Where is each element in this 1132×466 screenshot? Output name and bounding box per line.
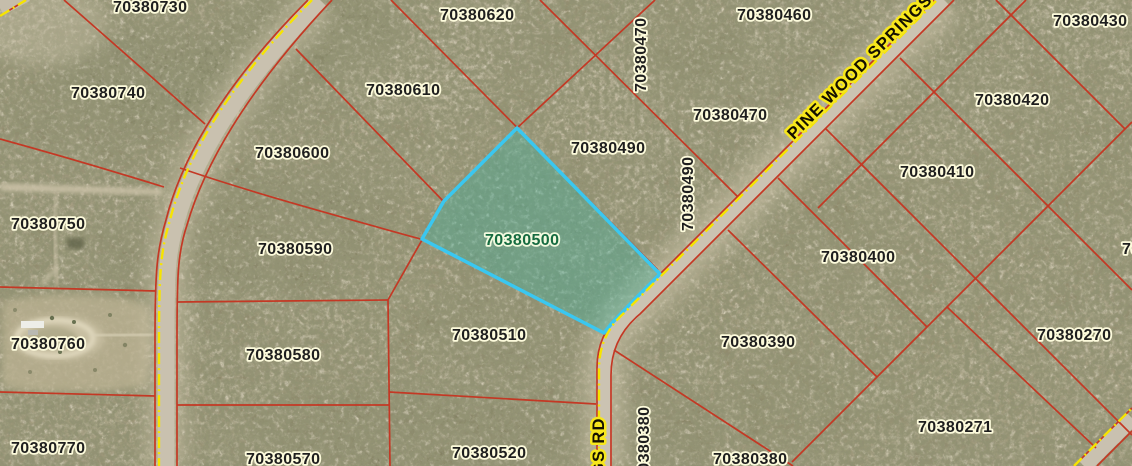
svg-text:70380420: 70380420 xyxy=(975,92,1049,109)
svg-text:70380610: 70380610 xyxy=(366,82,440,99)
svg-text:70380730: 70380730 xyxy=(113,0,187,16)
svg-text:70380380: 70380380 xyxy=(636,407,653,466)
svg-text:GS RD: GS RD xyxy=(590,417,608,466)
svg-text:70380470: 70380470 xyxy=(693,107,767,124)
svg-text:70380430: 70380430 xyxy=(1053,13,1127,30)
svg-text:70380271: 70380271 xyxy=(918,419,992,436)
svg-text:70380400: 70380400 xyxy=(821,249,895,266)
svg-text:70380590: 70380590 xyxy=(258,241,332,258)
svg-text:70380410: 70380410 xyxy=(900,164,974,181)
svg-text:70380490: 70380490 xyxy=(571,140,645,157)
svg-text:70380740: 70380740 xyxy=(71,85,145,102)
svg-text:70380750: 70380750 xyxy=(11,216,85,233)
svg-text:70380600: 70380600 xyxy=(255,145,329,162)
svg-text:70380490: 70380490 xyxy=(680,157,697,231)
svg-text:70380470: 70380470 xyxy=(633,18,650,92)
svg-text:70380380: 70380380 xyxy=(713,451,787,466)
svg-text:70380570: 70380570 xyxy=(246,451,320,466)
svg-text:70380510: 70380510 xyxy=(452,327,526,344)
svg-text:70380460: 70380460 xyxy=(737,7,811,24)
svg-text:70380500: 70380500 xyxy=(485,232,559,249)
svg-text:70380270: 70380270 xyxy=(1037,327,1111,344)
svg-text:70380580: 70380580 xyxy=(246,347,320,364)
svg-text:70380770: 70380770 xyxy=(11,440,85,457)
svg-text:70380390: 70380390 xyxy=(721,334,795,351)
svg-text:70380620: 70380620 xyxy=(440,7,514,24)
svg-text:70380520: 70380520 xyxy=(452,445,526,462)
svg-text:70: 70 xyxy=(1122,241,1132,258)
svg-text:70380760: 70380760 xyxy=(11,336,85,353)
